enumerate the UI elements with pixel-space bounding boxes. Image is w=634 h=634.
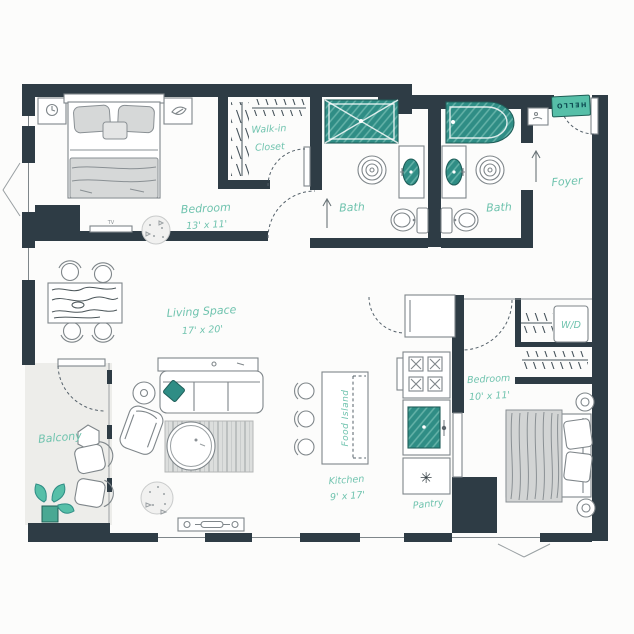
- hangers: [252, 99, 306, 116]
- toilet: [391, 208, 428, 233]
- bath1-label: Bath: [339, 200, 365, 214]
- bath-rug: [358, 156, 386, 184]
- balcony-bottom-wall: [28, 523, 110, 542]
- plant-pot: [42, 506, 58, 522]
- wd-closet-wall: [515, 298, 521, 347]
- bedroom1-dims: 13' x 11': [186, 219, 228, 232]
- window-x-icon: [498, 544, 550, 557]
- closet-door-arc: [268, 149, 305, 186]
- bedroom2-label: Bedroom: [467, 373, 511, 386]
- shower-drain: [359, 119, 363, 123]
- coffee-table: [167, 422, 215, 470]
- living-dims: 17' x 20': [182, 324, 224, 337]
- bath2-door-arrow-icon: [532, 151, 540, 182]
- tv-label: TV: [107, 220, 115, 226]
- bath2-label: Bath: [486, 200, 512, 214]
- tub-faucet: [451, 120, 455, 124]
- wall-art-frame: [528, 108, 548, 125]
- outer-wall-right: [592, 95, 608, 541]
- pillow: [563, 418, 593, 449]
- walk-in-closet: [231, 99, 306, 176]
- entry-door-leaf: [591, 98, 598, 134]
- living-label: Living Space: [166, 303, 237, 320]
- balcony-door-leaf: [58, 359, 105, 366]
- tv-shelf: [90, 226, 132, 232]
- kitchen-fixtures: ✳: [295, 295, 455, 494]
- bedroom1-label: Bedroom: [181, 201, 232, 217]
- nightstand-left: [38, 98, 66, 124]
- accent-rug: [141, 482, 173, 514]
- doormat-text: HELLO: [555, 100, 586, 110]
- patio-chair: [74, 478, 106, 508]
- walkin-label-1: Walk-in: [251, 123, 286, 136]
- hangers: [522, 351, 588, 369]
- nightstand: [576, 393, 594, 411]
- bathtub: [446, 102, 514, 143]
- hangers: [521, 313, 553, 333]
- foyer-label: Foyer: [551, 174, 584, 189]
- bedroom2-door-arc: [462, 300, 512, 350]
- food-island-label: Food Island: [341, 389, 351, 446]
- closet-wall: [218, 97, 228, 187]
- bedroom2-dims: 10' x 11': [469, 390, 511, 403]
- pantry-label: Pantry: [412, 497, 444, 511]
- bedroom2-door-leaf: [453, 413, 462, 477]
- pantry-star-icon: ✳: [420, 469, 433, 487]
- outer-wall-left: [22, 84, 35, 116]
- walkin-label-2: Closet: [255, 141, 286, 154]
- blanket: [70, 158, 158, 198]
- closet-door-leaf: [304, 147, 310, 186]
- floor-plan-canvas: TV: [0, 0, 634, 634]
- wd-label: W/D: [561, 320, 581, 331]
- bath1-wall: [310, 95, 322, 190]
- fridge-door-arc: [369, 297, 405, 333]
- hangers: [231, 102, 249, 176]
- nightstand-right: [164, 98, 192, 124]
- bath-rug: [476, 156, 504, 184]
- bath1-door-arrow-icon: [323, 199, 331, 228]
- toilet: [441, 208, 478, 233]
- accent-pillow: [103, 122, 127, 139]
- bar-stool: [295, 383, 314, 455]
- kitchen-dims: 9' x 17': [330, 490, 366, 503]
- wd-closet: [521, 306, 588, 369]
- side-table: [133, 382, 155, 404]
- pillow: [563, 452, 592, 483]
- outer-wall-bottom: [110, 533, 158, 542]
- bedroom1-door-arc: [268, 191, 315, 238]
- refrigerator: [405, 295, 455, 337]
- accent-rug: [142, 216, 170, 244]
- nightstand: [577, 499, 595, 517]
- patio-chair: [74, 443, 107, 474]
- floor-plan: TV: [0, 0, 634, 634]
- media-console: [178, 518, 244, 531]
- bath-divider-wall: [428, 95, 441, 247]
- window-x-icon: [3, 163, 20, 216]
- blanket: [506, 410, 562, 502]
- kitchen-label: Kitchen: [328, 474, 364, 487]
- bedroom2-wall: [452, 337, 464, 413]
